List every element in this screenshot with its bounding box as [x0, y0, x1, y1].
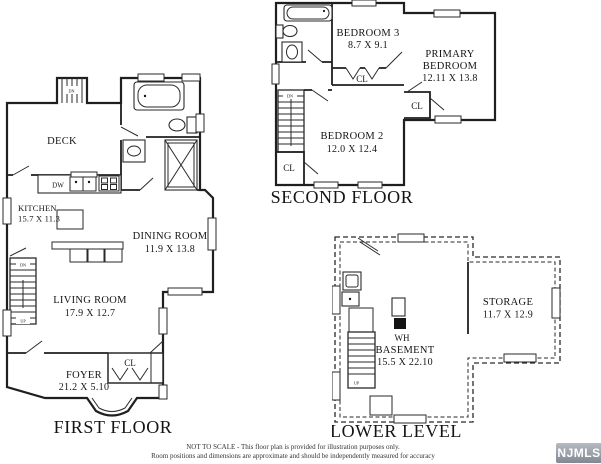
hall-closet-label: CL	[356, 74, 368, 84]
window	[3, 310, 11, 336]
kitchen-window	[71, 172, 97, 177]
living-room-dims: 17.9 X 12.7	[65, 308, 116, 319]
window	[332, 372, 340, 400]
laundry-dot	[349, 298, 351, 300]
window	[159, 385, 167, 399]
deck-label: DECK	[47, 136, 77, 147]
foyer-dims: 21.2 X 5.10	[59, 382, 110, 393]
window	[272, 64, 279, 84]
lower-level-plan: UP WH BASEMENT 15.5 X 22.10 STORAGE 11.7…	[332, 222, 601, 458]
storage-label: STORAGE	[483, 297, 533, 308]
lower-level-walls	[335, 237, 560, 422]
primary-bedroom-dims: 12.11 X 13.8	[422, 73, 477, 84]
window	[435, 116, 461, 123]
toilet-icon	[169, 119, 185, 131]
disclaimer-line-1: NOT TO SCALE - This floor plan is provid…	[93, 443, 493, 452]
window	[196, 114, 204, 132]
foyer-label: FOYER	[66, 370, 102, 381]
water-heater-icon	[392, 298, 405, 316]
corner-closet-label: CL	[283, 163, 295, 173]
furnace-icon	[394, 318, 406, 329]
lower-level-outline	[335, 237, 560, 422]
sink-vanity	[123, 140, 145, 162]
dining-room-dims: 11.9 X 13.8	[145, 244, 195, 255]
bathtub-drain	[323, 10, 325, 12]
window	[182, 74, 200, 81]
kitchen-dims: 15.7 X 11.3	[18, 214, 60, 224]
primary-bedroom-label-2: BEDROOM	[423, 61, 478, 72]
primary-bedroom-label-1: PRIMARY	[425, 49, 474, 60]
first-floor-laundry-closet	[165, 140, 197, 190]
bedroom2-label: BEDROOM 2	[320, 131, 383, 142]
dishwasher-label: DW	[52, 182, 64, 190]
basement-dims: 15.5 X 22.10	[377, 357, 433, 368]
stairs-up-label: UP	[20, 319, 26, 324]
window	[138, 74, 164, 81]
toilet-tank	[276, 25, 283, 38]
lower-level-title: LOWER LEVEL	[332, 421, 462, 441]
window	[159, 308, 167, 334]
window	[332, 286, 340, 314]
bedroom2-dims: 12.0 X 12.4	[327, 144, 378, 155]
bathtub-icon	[134, 82, 184, 110]
bedroom3-label: BEDROOM 3	[336, 28, 399, 39]
sink-faucet-dot	[75, 181, 77, 183]
sink-faucet-dot2	[88, 181, 90, 183]
kitchen-label: KITCHEN	[18, 203, 57, 213]
bedroom3-dims: 8.7 X 9.1	[348, 40, 388, 51]
disclaimer-text: NOT TO SCALE - This floor plan is provid…	[93, 443, 493, 461]
living-room-label: LIVING ROOM	[53, 295, 127, 306]
bathtub-drain	[144, 95, 146, 97]
window	[3, 198, 11, 224]
second-floor-plan: CL DN CL CL BEDROOM 3	[268, 0, 503, 215]
primary-closet-label: CL	[411, 101, 423, 111]
window	[398, 234, 424, 242]
window	[168, 288, 202, 295]
window	[208, 218, 216, 250]
foyer-closet-label: CL	[124, 358, 136, 368]
floorplan-sheet: DN DW	[0, 0, 601, 464]
window	[352, 0, 376, 6]
disclaimer-line-2: Room positions and dimensions are approx…	[93, 452, 493, 461]
window	[552, 288, 560, 318]
njmls-watermark: NJMLS	[556, 443, 601, 463]
stairs-dn-label: DN	[287, 94, 293, 99]
first-floor-foyer-closet: CL	[108, 353, 163, 383]
window	[504, 354, 536, 362]
kitchen-counter	[38, 175, 121, 193]
water-heater-label: WH	[395, 333, 410, 343]
storage-dims: 11.7 X 12.9	[483, 310, 533, 321]
basement-label: BASEMENT	[376, 345, 435, 356]
toilet-icon	[283, 26, 297, 37]
deck-stairs-dn-label: DN	[68, 89, 74, 94]
first-floor-plan: DN DW	[0, 70, 240, 442]
stairs-up-label: UP	[354, 381, 360, 386]
stairs-dn-label: DN	[20, 263, 26, 268]
second-floor-title: SECOND FLOOR	[271, 187, 414, 207]
window	[434, 10, 460, 17]
dining-room-label: DINING ROOM	[133, 231, 208, 242]
first-floor-title: FIRST FLOOR	[54, 417, 173, 437]
